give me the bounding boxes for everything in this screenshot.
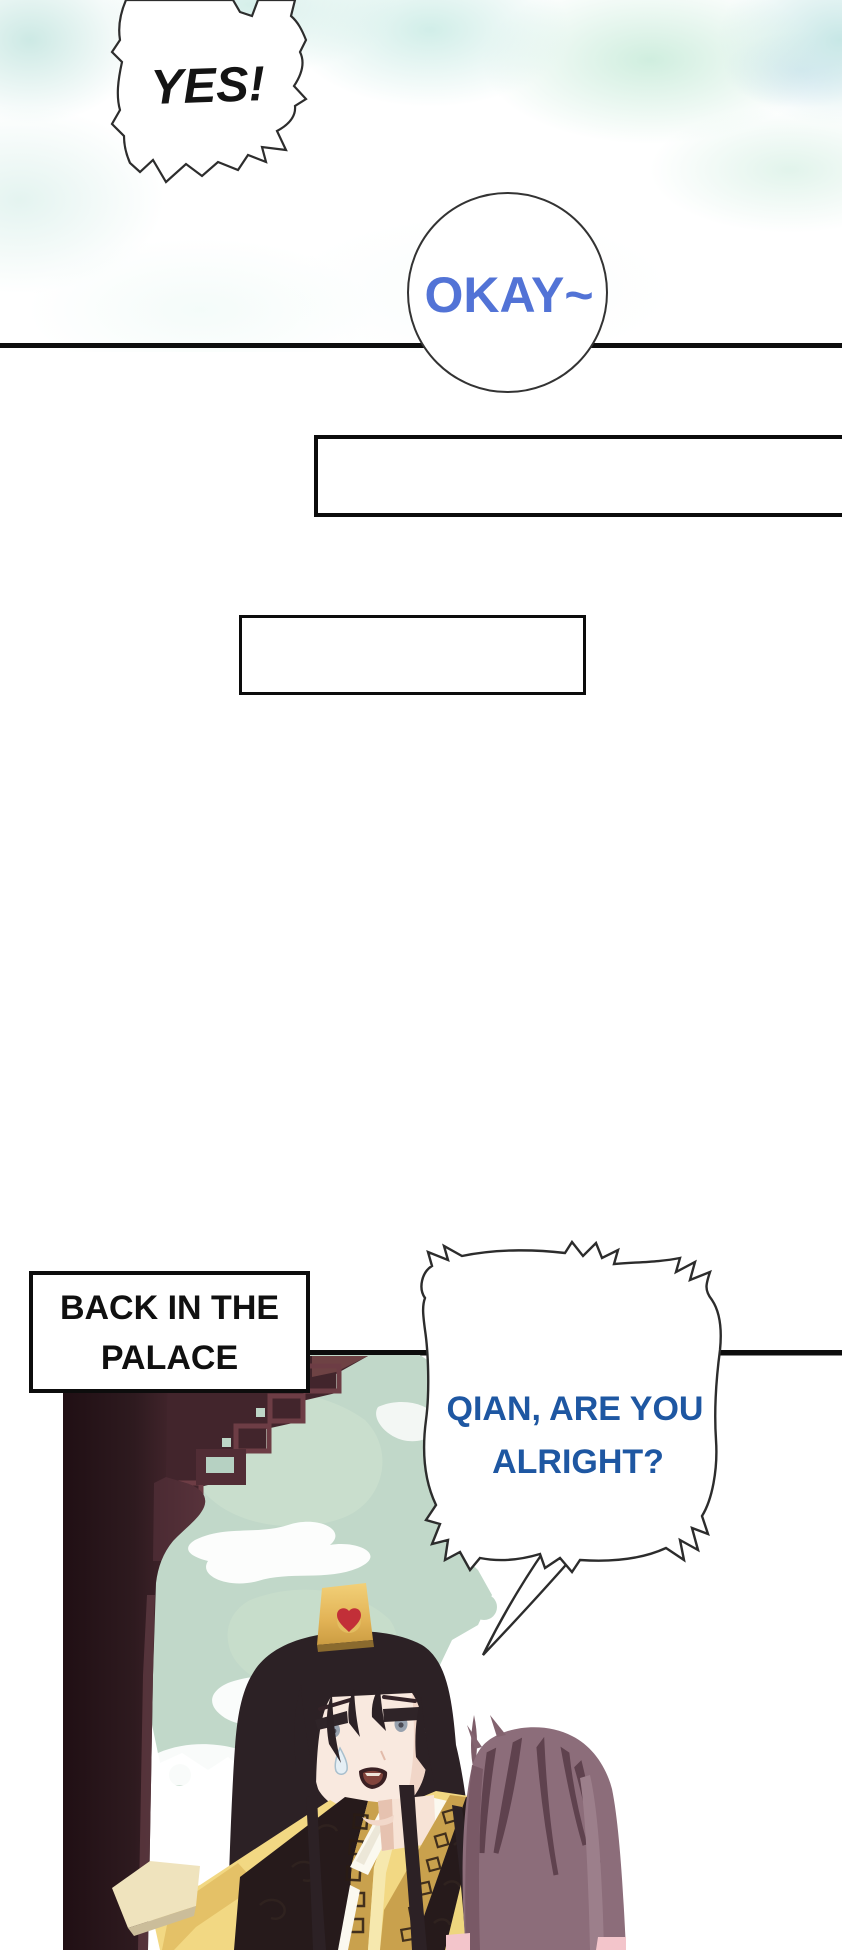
svg-text:ALRIGHT?: ALRIGHT?: [492, 1443, 664, 1481]
svg-text:QIAN, ARE YOU: QIAN, ARE YOU: [447, 1390, 704, 1428]
svg-text:YES!: YES!: [150, 57, 266, 115]
